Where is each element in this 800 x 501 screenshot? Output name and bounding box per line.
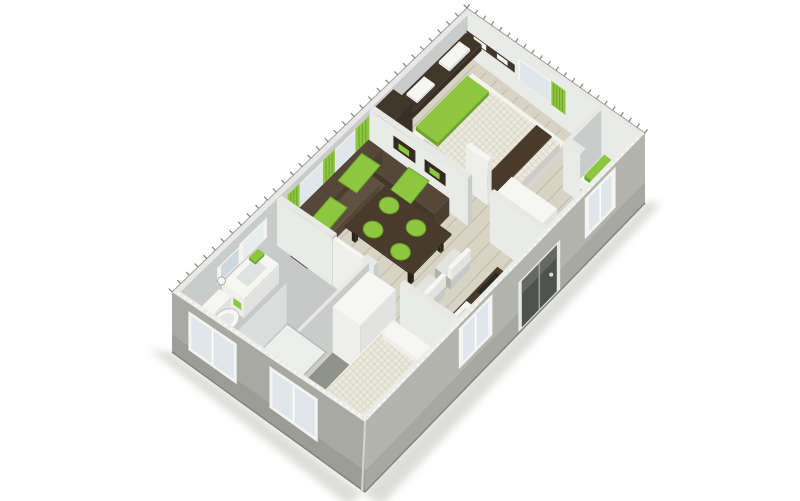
rafter-ticks-ne-tick (637, 124, 640, 128)
rafter-ticks-nw-tick (368, 96, 371, 99)
rafter-ticks-ne-tick (621, 112, 624, 116)
rafter-ticks-nw-tick (290, 172, 293, 175)
rafter-ticks-ne-tick (580, 84, 583, 88)
rafter-ticks-nw-tick (455, 13, 458, 16)
rafter-ticks-nw-tick (169, 289, 172, 292)
rafter-ticks-ne-tick (507, 33, 510, 37)
rafter-ticks-nw-tick (394, 71, 397, 74)
rafter-ticks-nw-tick (429, 38, 432, 41)
rafter-ticks-nw-tick (203, 255, 206, 258)
rafter-ticks-nw-tick (308, 155, 311, 158)
rafter-ticks-ne-tick (556, 67, 559, 71)
rafter-ticks-nw-tick (386, 80, 389, 83)
rafter-ticks-nw-tick (281, 180, 284, 183)
rafter-ticks-nw-tick (334, 130, 337, 133)
floorplan-page (0, 0, 800, 501)
rafter-ticks-ne-tick (467, 4, 470, 8)
rafter-ticks-nw-tick (255, 205, 258, 208)
rafter-ticks-nw-tick (238, 222, 241, 225)
rafter-ticks-ne-tick (572, 78, 575, 82)
rafter-ticks-ne-tick (613, 107, 616, 111)
rafter-ticks-nw-tick (247, 213, 250, 216)
rafter-ticks-nw-tick (186, 272, 189, 275)
rafter-ticks-ne-tick (532, 50, 535, 54)
rafter-ticks-nw-tick (212, 247, 215, 250)
rafter-ticks-nw-tick (299, 163, 302, 166)
partition1-segment-a-face-se (468, 174, 472, 226)
rafter-ticks-nw-tick (195, 264, 198, 267)
rafter-ticks-nw-tick (360, 105, 363, 108)
rafter-ticks-nw-tick (177, 280, 180, 283)
rafter-ticks-ne-tick (645, 129, 648, 133)
rafter-ticks-nw-tick (342, 122, 345, 125)
rafter-ticks-nw-tick (377, 88, 380, 91)
entrance-door-handle (549, 273, 553, 277)
rafter-ticks-ne-tick (524, 44, 527, 48)
rafter-ticks-nw-tick (316, 147, 319, 150)
rafter-ticks-nw-tick (229, 230, 232, 233)
toilet-paper-holder (217, 277, 225, 285)
rafter-ticks-ne-tick (499, 27, 502, 31)
rafter-ticks-ne-tick (475, 10, 478, 14)
rafter-ticks-nw-tick (264, 197, 267, 200)
rafter-ticks-nw-tick (446, 21, 449, 24)
rafter-ticks-nw-tick (420, 46, 423, 49)
rafter-ticks-ne-tick (483, 16, 486, 20)
floorplan-rendering (0, 0, 800, 501)
rafter-ticks-nw-tick (325, 138, 328, 141)
green-plate-3 (363, 221, 383, 238)
rafter-ticks-ne-tick (540, 55, 543, 59)
green-plate-2 (406, 220, 426, 237)
rafter-ticks-nw-tick (221, 238, 224, 241)
rafter-ticks-ne-tick (596, 95, 599, 99)
rafter-ticks-nw-tick (351, 113, 354, 116)
rafter-ticks-nw-tick (412, 55, 415, 58)
rafter-ticks-nw-tick (464, 5, 467, 8)
rafter-ticks-ne-tick (491, 21, 494, 25)
rafter-ticks-ne-tick (588, 90, 591, 94)
scene-root (150, 4, 661, 501)
rafter-ticks-ne-tick (516, 38, 519, 42)
rafter-ticks-nw-tick (403, 63, 406, 66)
rafter-ticks-nw-tick (438, 30, 441, 33)
green-plate-4 (391, 244, 411, 261)
rafter-ticks-ne-tick (629, 118, 632, 122)
rafter-ticks-nw-tick (273, 188, 276, 191)
green-plate-1 (379, 197, 399, 214)
rafter-ticks-ne-tick (564, 72, 567, 76)
rafter-ticks-ne-tick (605, 101, 608, 105)
rafter-ticks-ne-tick (548, 61, 551, 65)
